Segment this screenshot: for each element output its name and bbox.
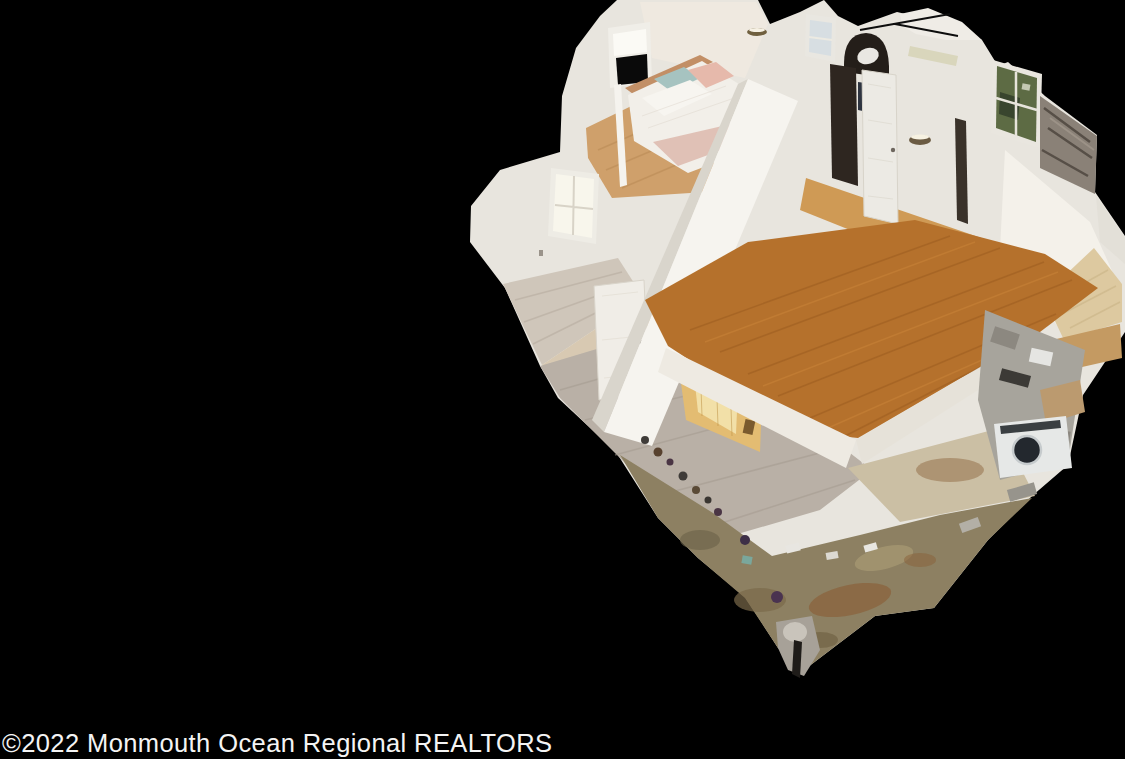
hall-door-white bbox=[862, 70, 898, 224]
left-room-window bbox=[548, 168, 599, 244]
dollhouse-3d-view: ©2022 Monmouth Ocean Regional REALTORS bbox=[0, 0, 1125, 759]
exterior-window-greenery bbox=[991, 60, 1042, 148]
watermark-text: ©2022 Monmouth Ocean Regional REALTORS bbox=[2, 729, 552, 757]
real-estate-photo: ©2022 Monmouth Ocean Regional REALTORS bbox=[0, 0, 1125, 759]
ceiling-sconce-glow bbox=[749, 28, 765, 32]
rust-stain-tiles bbox=[916, 458, 984, 482]
hall-window bbox=[805, 14, 836, 62]
hall-door-knob bbox=[891, 148, 895, 152]
hall-sconce-glow bbox=[911, 135, 929, 140]
hall-doorway-sliver bbox=[955, 118, 968, 224]
wall-outlet bbox=[539, 250, 543, 256]
hall-doorway-dark bbox=[830, 64, 858, 186]
purple-item bbox=[771, 591, 783, 603]
washing-machine bbox=[994, 416, 1072, 478]
bedroom-window bbox=[608, 22, 652, 88]
